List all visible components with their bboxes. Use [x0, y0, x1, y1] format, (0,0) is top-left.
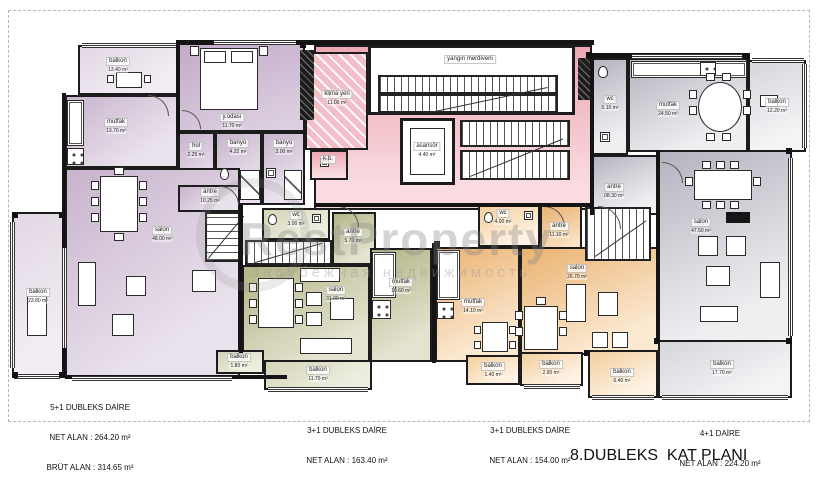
chair — [730, 201, 739, 209]
chair — [509, 341, 516, 349]
window — [10, 222, 15, 368]
summary-apartment1: 5+1 DUBLEKS DAİRE NET ALAN : 264.20 m² B… — [15, 383, 165, 480]
chair — [536, 297, 546, 305]
a3-duplex-stairs — [585, 207, 651, 261]
chair — [515, 327, 523, 336]
chair — [706, 133, 715, 141]
summary-net: NET ALAN : 163.40 m² — [272, 456, 422, 466]
chair — [91, 181, 99, 190]
chair — [139, 213, 147, 222]
pier — [584, 350, 590, 356]
chair — [559, 327, 567, 336]
toilet — [484, 212, 493, 223]
label-a1-hol: hol2.25 m² — [188, 142, 205, 158]
chair — [474, 341, 481, 349]
chair — [474, 326, 481, 334]
armchair — [726, 236, 746, 256]
chair — [249, 315, 257, 324]
chair — [716, 161, 725, 169]
label-a1-mutfak: mutfak13.70 m² — [104, 118, 128, 134]
window — [788, 158, 793, 336]
console-table — [700, 306, 738, 322]
stove — [67, 148, 84, 165]
stove — [372, 300, 391, 319]
label-a2-antre: antre5.70 m² — [343, 228, 363, 244]
chair — [114, 233, 124, 241]
summary-net: NET ALAN : 264.20 m² — [15, 433, 165, 443]
shaft-left — [300, 50, 314, 120]
label-yangin-merdiveni: yangın merdiveni — [444, 55, 496, 64]
chair — [753, 177, 761, 186]
pier — [59, 372, 65, 378]
plan-title: 8.DUBLEKS KAT PLANI — [570, 447, 747, 465]
nightstand — [259, 46, 268, 56]
label-a1-banyo1: banyo4.22 m² — [227, 139, 249, 155]
window — [632, 54, 742, 59]
floor-plan: yangın merdiveni klima yeri11.00 m² asan… — [0, 0, 817, 480]
balcony-table — [116, 72, 142, 88]
watermark-logo-circle — [196, 178, 310, 292]
dining-table — [100, 176, 138, 232]
washbasin — [312, 214, 321, 223]
label-a1-yodasi: y.odası11.70 m² — [220, 113, 245, 129]
chair — [722, 133, 731, 141]
window — [802, 64, 807, 148]
pier — [744, 54, 750, 60]
chair — [706, 73, 715, 81]
pillow — [204, 51, 226, 63]
window — [752, 58, 804, 63]
summary-name: 3+1 DUBLEKS DAİRE — [272, 426, 422, 436]
chair — [91, 213, 99, 222]
chair — [107, 75, 114, 83]
label-a4-wc: wc5.10 m² — [602, 95, 619, 111]
chair — [685, 177, 693, 186]
wall-corridor-bottom — [314, 203, 594, 207]
sofa — [566, 284, 586, 322]
label-a1-banyo2: banyo3.00 m² — [273, 139, 295, 155]
pier — [12, 372, 18, 378]
pier — [59, 212, 65, 218]
chair — [139, 181, 147, 190]
label-a3-balkon3: balkon6.40 m² — [610, 368, 634, 384]
label-a3-balkon2: balkon2.90 m² — [539, 360, 563, 376]
label-a2-balkon2: balkon11.70 m² — [306, 366, 330, 382]
label-kb: k.b. — [320, 155, 336, 164]
kitchen-counter — [437, 250, 460, 300]
pier — [586, 52, 592, 58]
window — [662, 395, 788, 400]
chair — [249, 299, 257, 308]
window — [72, 376, 232, 381]
pouf — [306, 292, 322, 306]
armchair — [612, 332, 628, 348]
wall-bedroom-left — [176, 42, 180, 134]
chair — [295, 299, 303, 308]
sofa — [760, 262, 780, 298]
label-a4-mutfak: mutfak24.50 m² — [656, 101, 680, 117]
pier — [300, 42, 306, 48]
label-a3-mutfak: mutfak14.10 m² — [461, 298, 485, 314]
label-klima-yeri: klima yeri11.00 m² — [321, 90, 352, 106]
summary-name: 5+1 DUBLEKS DAİRE — [15, 403, 165, 413]
summary-name: 3+1 DUBLEKS DAİRE — [455, 426, 605, 436]
label-a4-salon: salon47.50 m² — [691, 218, 711, 234]
pier — [786, 338, 792, 344]
chair — [730, 161, 739, 169]
chair — [702, 201, 711, 209]
stove — [437, 302, 454, 319]
kitchen-table — [482, 322, 508, 352]
label-a1-balkon-sol: balkon23.80 m² — [26, 288, 50, 304]
sofa — [78, 262, 96, 306]
coffee-table — [706, 266, 730, 286]
nightstand — [190, 46, 199, 56]
chair — [144, 75, 151, 83]
summary-apartment4: 4+1 DAİRE NET ALAN : 224.20 m² BRÜT ALAN… — [645, 409, 795, 480]
core-stairs-flight-2 — [460, 150, 570, 180]
chair — [743, 90, 751, 99]
window — [524, 384, 580, 389]
pier — [654, 338, 660, 344]
chair — [722, 73, 731, 81]
wall-a4-salon-left — [656, 150, 660, 342]
chair — [114, 167, 124, 175]
rug — [598, 292, 618, 316]
chair — [716, 201, 725, 209]
label-a2-mutfak: mutfak10.60 m² — [389, 278, 413, 294]
label-a3-balkon1: balkon1.40 m² — [481, 362, 505, 378]
armchair — [698, 236, 718, 256]
washbasin — [266, 168, 276, 178]
summary-brut: BRÜT ALAN : 314.65 m² — [15, 463, 165, 473]
wall-core-a4 — [590, 55, 594, 215]
dining-table-oval — [698, 82, 742, 132]
window — [214, 40, 296, 45]
coffee-table — [126, 276, 146, 296]
label-a3-salon: salon26.70 m² — [567, 264, 587, 280]
chair — [743, 106, 751, 115]
label-a3-antre: antre11.10 m² — [549, 222, 569, 238]
window — [592, 395, 654, 400]
chair — [295, 283, 303, 292]
wall-a2-a3 — [432, 243, 436, 363]
tv-unit — [726, 212, 750, 223]
window — [62, 248, 67, 348]
label-asansor: asansör4.40 m² — [413, 142, 440, 158]
toilet — [220, 168, 229, 180]
sofa — [300, 338, 352, 354]
chair — [689, 106, 697, 115]
summary-apartment2: 3+1 DUBLEKS DAİRE NET ALAN : 163.40 m² B… — [272, 406, 422, 480]
window — [268, 387, 368, 392]
chair — [91, 197, 99, 206]
armchair — [592, 332, 608, 348]
label-a4-balkon-ust: balkon12.20 m² — [765, 98, 789, 114]
window — [14, 374, 60, 379]
kitchen-counter — [67, 100, 84, 146]
chair — [295, 315, 303, 324]
label-a4-antre: antre08.30 m² — [604, 183, 624, 199]
summary-name: 4+1 DAİRE — [645, 429, 795, 439]
window — [82, 43, 176, 48]
armchair — [112, 314, 134, 336]
label-a3-wc: wc4.00 m² — [495, 209, 512, 225]
pier — [12, 212, 18, 218]
dining-table — [524, 306, 558, 350]
pier — [786, 148, 792, 154]
label-a1-salon: salon48.00 m² — [152, 226, 172, 242]
dining-table — [694, 170, 752, 200]
chair — [515, 311, 523, 320]
washbasin — [524, 211, 533, 220]
summary-apartment3: 3+1 DUBLEKS DAİRE NET ALAN : 154.00 m² B… — [455, 406, 605, 480]
chair — [139, 197, 147, 206]
pillow — [231, 51, 253, 63]
label-a2-balkon1: balkon1.80 m² — [227, 353, 251, 369]
label-a2-salon: salon31.00 m² — [326, 286, 346, 302]
toilet — [598, 66, 608, 78]
label-a1-balkon-ust: balkon13.40 m² — [106, 57, 130, 73]
chair — [702, 161, 711, 169]
sofa — [300, 268, 340, 282]
label-a4-balkon-alt: balkon17.70 m² — [710, 360, 734, 376]
pouf — [306, 312, 322, 326]
pier — [434, 241, 440, 247]
washbasin — [600, 132, 610, 142]
chair — [689, 90, 697, 99]
